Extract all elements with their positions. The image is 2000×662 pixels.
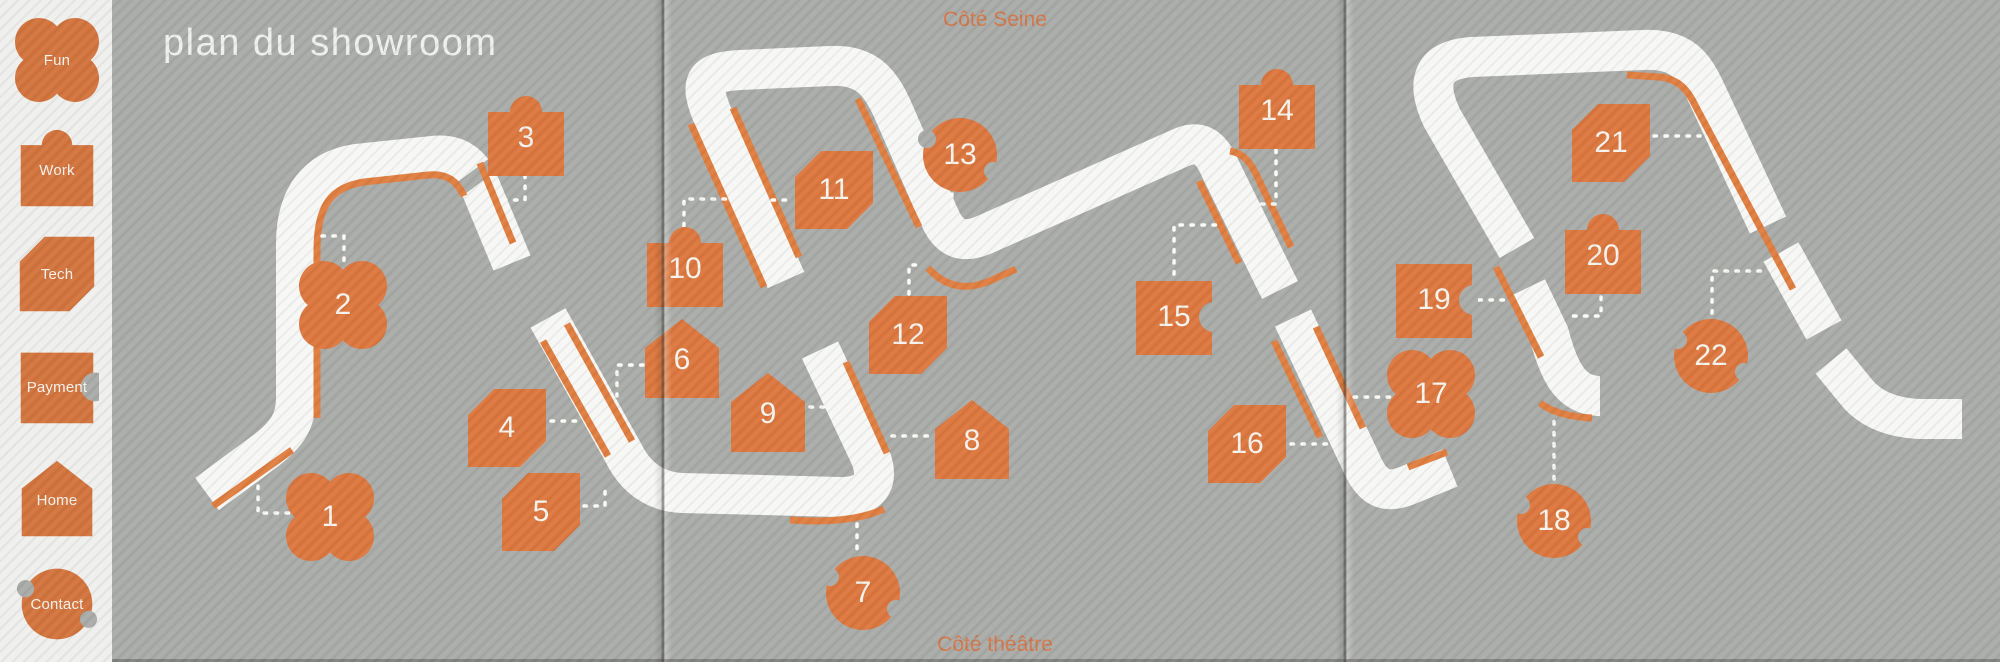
station-number: 11: [790, 146, 878, 234]
station-1[interactable]: 1: [286, 473, 374, 561]
sidebar-item-label: Payment: [15, 345, 99, 429]
station-7[interactable]: 7: [819, 549, 907, 637]
station-number: 17: [1387, 350, 1475, 438]
sidebar-item-label: Work: [15, 128, 99, 212]
station-12[interactable]: 12: [864, 291, 952, 379]
station-9[interactable]: 9: [724, 370, 812, 458]
station-6[interactable]: 6: [638, 316, 726, 404]
station-number: 14: [1233, 67, 1321, 155]
station-number: 8: [928, 397, 1016, 485]
station-number: 10: [641, 225, 729, 313]
station-10[interactable]: 10: [641, 225, 729, 313]
station-19[interactable]: 19: [1390, 256, 1478, 344]
sidebar-item-contact[interactable]: Contact: [15, 562, 99, 646]
station-number: 1: [286, 473, 374, 561]
station-number: 15: [1130, 273, 1218, 361]
station-number: 22: [1667, 312, 1755, 400]
station-number: 19: [1390, 256, 1478, 344]
station-number: 12: [864, 291, 952, 379]
station-number: 7: [819, 549, 907, 637]
station-3[interactable]: 3: [482, 94, 570, 182]
station-number: 3: [482, 94, 570, 182]
sidebar-item-label: Tech: [15, 232, 99, 316]
station-number: 18: [1510, 477, 1598, 565]
station-21[interactable]: 21: [1567, 99, 1655, 187]
sidebar-item-label: Contact: [15, 562, 99, 646]
label-cote-seine: Côté Seine: [845, 8, 1145, 32]
station-number: 13: [916, 111, 1004, 199]
sidebar-item-tech[interactable]: Tech: [15, 232, 99, 316]
station-22[interactable]: 22: [1667, 312, 1755, 400]
station-number: 16: [1203, 400, 1291, 488]
station-18[interactable]: 18: [1510, 477, 1598, 565]
station-16[interactable]: 16: [1203, 400, 1291, 488]
station-number: 21: [1567, 99, 1655, 187]
station-15[interactable]: 15: [1130, 273, 1218, 361]
station-2[interactable]: 2: [299, 261, 387, 349]
sidebar-item-label: Home: [15, 458, 99, 542]
station-8[interactable]: 8: [928, 397, 1016, 485]
station-number: 2: [299, 261, 387, 349]
page-title: plan du showroom: [163, 22, 498, 65]
sidebar-item-payment[interactable]: Payment: [15, 345, 99, 429]
station-20[interactable]: 20: [1559, 212, 1647, 300]
station-14[interactable]: 14: [1233, 67, 1321, 155]
station-number: 20: [1559, 212, 1647, 300]
sidebar-item-label: Fun: [15, 18, 99, 102]
station-13[interactable]: 13: [916, 111, 1004, 199]
label-cote-theatre: Côté théâtre: [845, 633, 1145, 657]
station-number: 9: [724, 370, 812, 458]
showroom-plan-page: 12345678910111213141516171819202122 plan…: [0, 0, 2000, 662]
station-11[interactable]: 11: [790, 146, 878, 234]
station-number: 5: [497, 468, 585, 556]
station-layer: 12345678910111213141516171819202122: [0, 0, 2000, 662]
sidebar-item-work[interactable]: Work: [15, 128, 99, 212]
station-4[interactable]: 4: [463, 384, 551, 472]
sidebar-item-fun[interactable]: Fun: [15, 18, 99, 102]
category-sidebar: FunWorkTechPaymentHomeContact: [0, 0, 112, 662]
station-5[interactable]: 5: [497, 468, 585, 556]
station-17[interactable]: 17: [1387, 350, 1475, 438]
station-number: 4: [463, 384, 551, 472]
sidebar-item-home[interactable]: Home: [15, 458, 99, 542]
station-number: 6: [638, 316, 726, 404]
